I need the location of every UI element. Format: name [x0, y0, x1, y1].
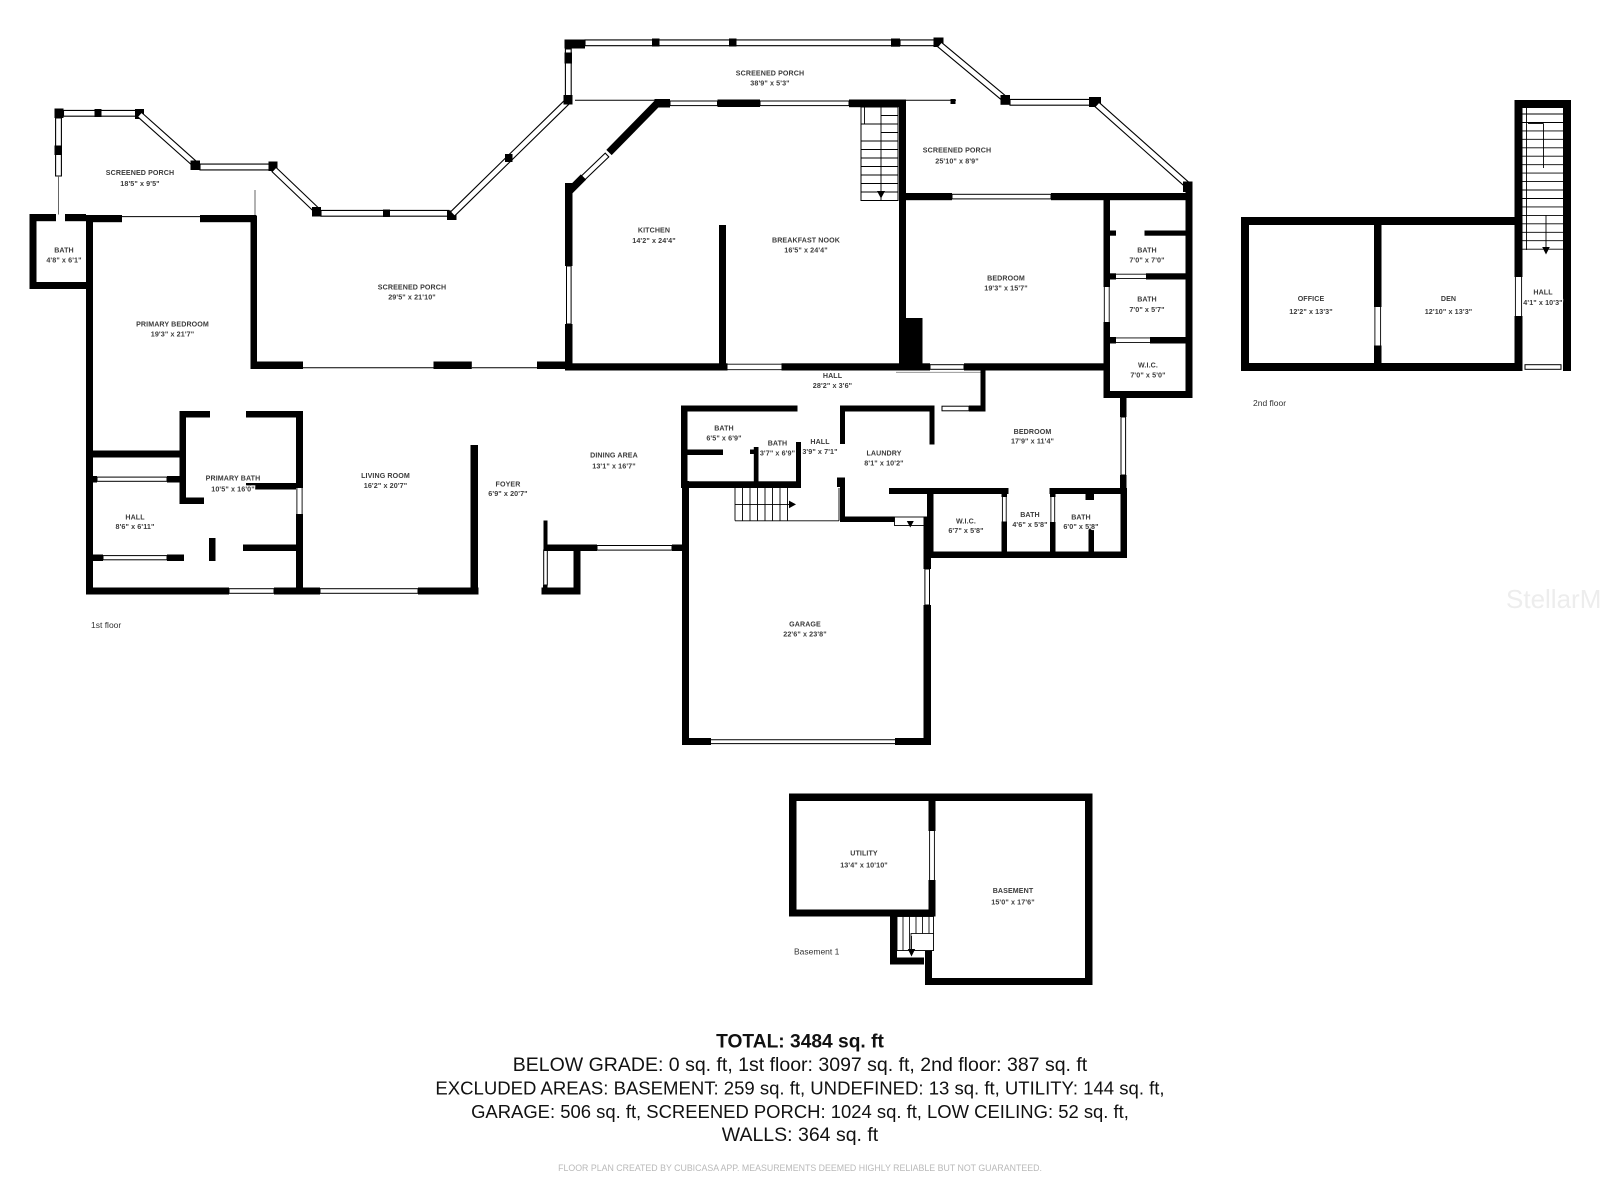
svg-text:SCREENED PORCH: SCREENED PORCH: [923, 147, 991, 155]
svg-text:14'2" x 24'4": 14'2" x 24'4": [632, 236, 676, 245]
svg-text:GARAGE: 506 sq. ft, SCREENED P: GARAGE: 506 sq. ft, SCREENED PORCH: 1024…: [471, 1101, 1129, 1122]
svg-text:HALL: HALL: [125, 514, 145, 522]
svg-text:13'1" x 16'7": 13'1" x 16'7": [592, 462, 636, 471]
svg-text:WALLS: 364 sq. ft: WALLS: 364 sq. ft: [722, 1124, 879, 1146]
svg-text:PRIMARY BEDROOM: PRIMARY BEDROOM: [136, 321, 209, 329]
svg-text:7'0" x 7'0": 7'0" x 7'0": [1129, 256, 1164, 265]
svg-text:W.I.C.: W.I.C.: [956, 517, 976, 525]
svg-text:PRIMARY BATH: PRIMARY BATH: [206, 474, 261, 482]
svg-text:BELOW GRADE: 0 sq. ft, 1st flo: BELOW GRADE: 0 sq. ft, 1st floor: 3097 s…: [513, 1054, 1088, 1076]
svg-text:4'6" x 5'8": 4'6" x 5'8": [1012, 520, 1047, 529]
svg-text:BATH: BATH: [768, 440, 788, 448]
svg-text:BREAKFAST NOOK: BREAKFAST NOOK: [772, 236, 841, 244]
svg-text:HALL: HALL: [1533, 288, 1553, 296]
svg-text:DINING AREA: DINING AREA: [590, 452, 638, 460]
svg-text:BATH: BATH: [714, 424, 734, 432]
svg-text:38'9" x 5'3": 38'9" x 5'3": [750, 79, 789, 88]
svg-text:BATH: BATH: [1020, 511, 1040, 519]
svg-text:6'7" x 5'8": 6'7" x 5'8": [948, 526, 983, 535]
svg-text:29'5" x 21'10": 29'5" x 21'10": [388, 293, 436, 302]
svg-text:FLOOR PLAN CREATED BY CUBICASA: FLOOR PLAN CREATED BY CUBICASA APP. MEAS…: [558, 1163, 1042, 1173]
svg-text:4'1" x 10'3": 4'1" x 10'3": [1523, 298, 1562, 307]
svg-text:StellarMLS: StellarMLS: [1506, 584, 1600, 614]
svg-text:GARAGE: GARAGE: [789, 621, 821, 629]
svg-text:BATH: BATH: [1137, 296, 1157, 304]
svg-text:6'0" x 5'8": 6'0" x 5'8": [1063, 522, 1098, 531]
svg-text:12'10" x 13'3": 12'10" x 13'3": [1425, 307, 1473, 316]
svg-text:LIVING ROOM: LIVING ROOM: [361, 472, 410, 480]
svg-text:Basement 1: Basement 1: [794, 947, 840, 957]
svg-text:W.I.C.: W.I.C.: [1138, 362, 1158, 370]
svg-text:BEDROOM: BEDROOM: [1014, 428, 1052, 436]
svg-text:FOYER: FOYER: [496, 481, 521, 489]
svg-text:3'9" x 7'1": 3'9" x 7'1": [802, 447, 837, 456]
svg-text:15'0" x 17'6": 15'0" x 17'6": [991, 898, 1035, 907]
svg-text:BATH: BATH: [1071, 514, 1091, 522]
svg-text:16'2" x 20'7": 16'2" x 20'7": [364, 481, 408, 490]
svg-text:6'5" x 6'9": 6'5" x 6'9": [706, 434, 741, 443]
svg-text:25'10" x 8'9": 25'10" x 8'9": [935, 156, 979, 165]
svg-text:19'3" x 21'7": 19'3" x 21'7": [151, 330, 195, 339]
svg-text:12'2" x 13'3": 12'2" x 13'3": [1289, 307, 1333, 316]
svg-text:16'5" x 24'4": 16'5" x 24'4": [784, 246, 828, 255]
svg-text:22'6" x 23'8": 22'6" x 23'8": [783, 630, 827, 639]
svg-text:6'9" x 20'7": 6'9" x 20'7": [488, 489, 527, 498]
svg-text:TOTAL: 3484 sq. ft: TOTAL: 3484 sq. ft: [716, 1032, 884, 1053]
svg-text:BEDROOM: BEDROOM: [987, 275, 1025, 283]
svg-text:BASEMENT: BASEMENT: [993, 887, 1034, 895]
svg-text:KITCHEN: KITCHEN: [638, 227, 670, 235]
svg-text:3'7" x 6'9": 3'7" x 6'9": [760, 449, 795, 458]
svg-text:10'5" x 16'0": 10'5" x 16'0": [211, 484, 255, 493]
svg-text:DEN: DEN: [1441, 295, 1456, 303]
svg-text:LAUNDRY: LAUNDRY: [866, 450, 901, 458]
svg-text:BATH: BATH: [1137, 247, 1157, 255]
svg-text:BATH: BATH: [54, 247, 74, 255]
svg-text:7'0" x 5'0": 7'0" x 5'0": [1130, 371, 1165, 380]
svg-text:8'1" x 10'2": 8'1" x 10'2": [864, 459, 903, 468]
svg-text:EXCLUDED AREAS: BASEMENT: 259: EXCLUDED AREAS: BASEMENT: 259 sq. ft, UN…: [435, 1077, 1164, 1098]
svg-text:SCREENED PORCH: SCREENED PORCH: [106, 169, 174, 177]
svg-text:19'3" x 15'7": 19'3" x 15'7": [984, 284, 1028, 293]
svg-text:SCREENED PORCH: SCREENED PORCH: [378, 284, 446, 292]
svg-text:UTILITY: UTILITY: [850, 850, 878, 858]
svg-text:SCREENED PORCH: SCREENED PORCH: [736, 70, 804, 78]
svg-text:2nd floor: 2nd floor: [1253, 398, 1286, 408]
svg-text:17'9" x 11'4": 17'9" x 11'4": [1011, 437, 1054, 446]
svg-text:HALL: HALL: [823, 372, 843, 380]
svg-text:OFFICE: OFFICE: [1298, 295, 1325, 303]
svg-text:13'4" x 10'10": 13'4" x 10'10": [840, 861, 888, 870]
svg-text:1st floor: 1st floor: [91, 620, 121, 630]
svg-text:HALL: HALL: [810, 438, 830, 446]
svg-text:28'2" x 3'6": 28'2" x 3'6": [813, 381, 852, 390]
svg-text:4'8" x 6'1": 4'8" x 6'1": [46, 256, 81, 265]
svg-text:7'0" x 5'7": 7'0" x 5'7": [1129, 305, 1164, 314]
svg-text:8'6" x 6'11": 8'6" x 6'11": [115, 522, 154, 531]
svg-text:18'5" x 9'5": 18'5" x 9'5": [120, 179, 159, 188]
